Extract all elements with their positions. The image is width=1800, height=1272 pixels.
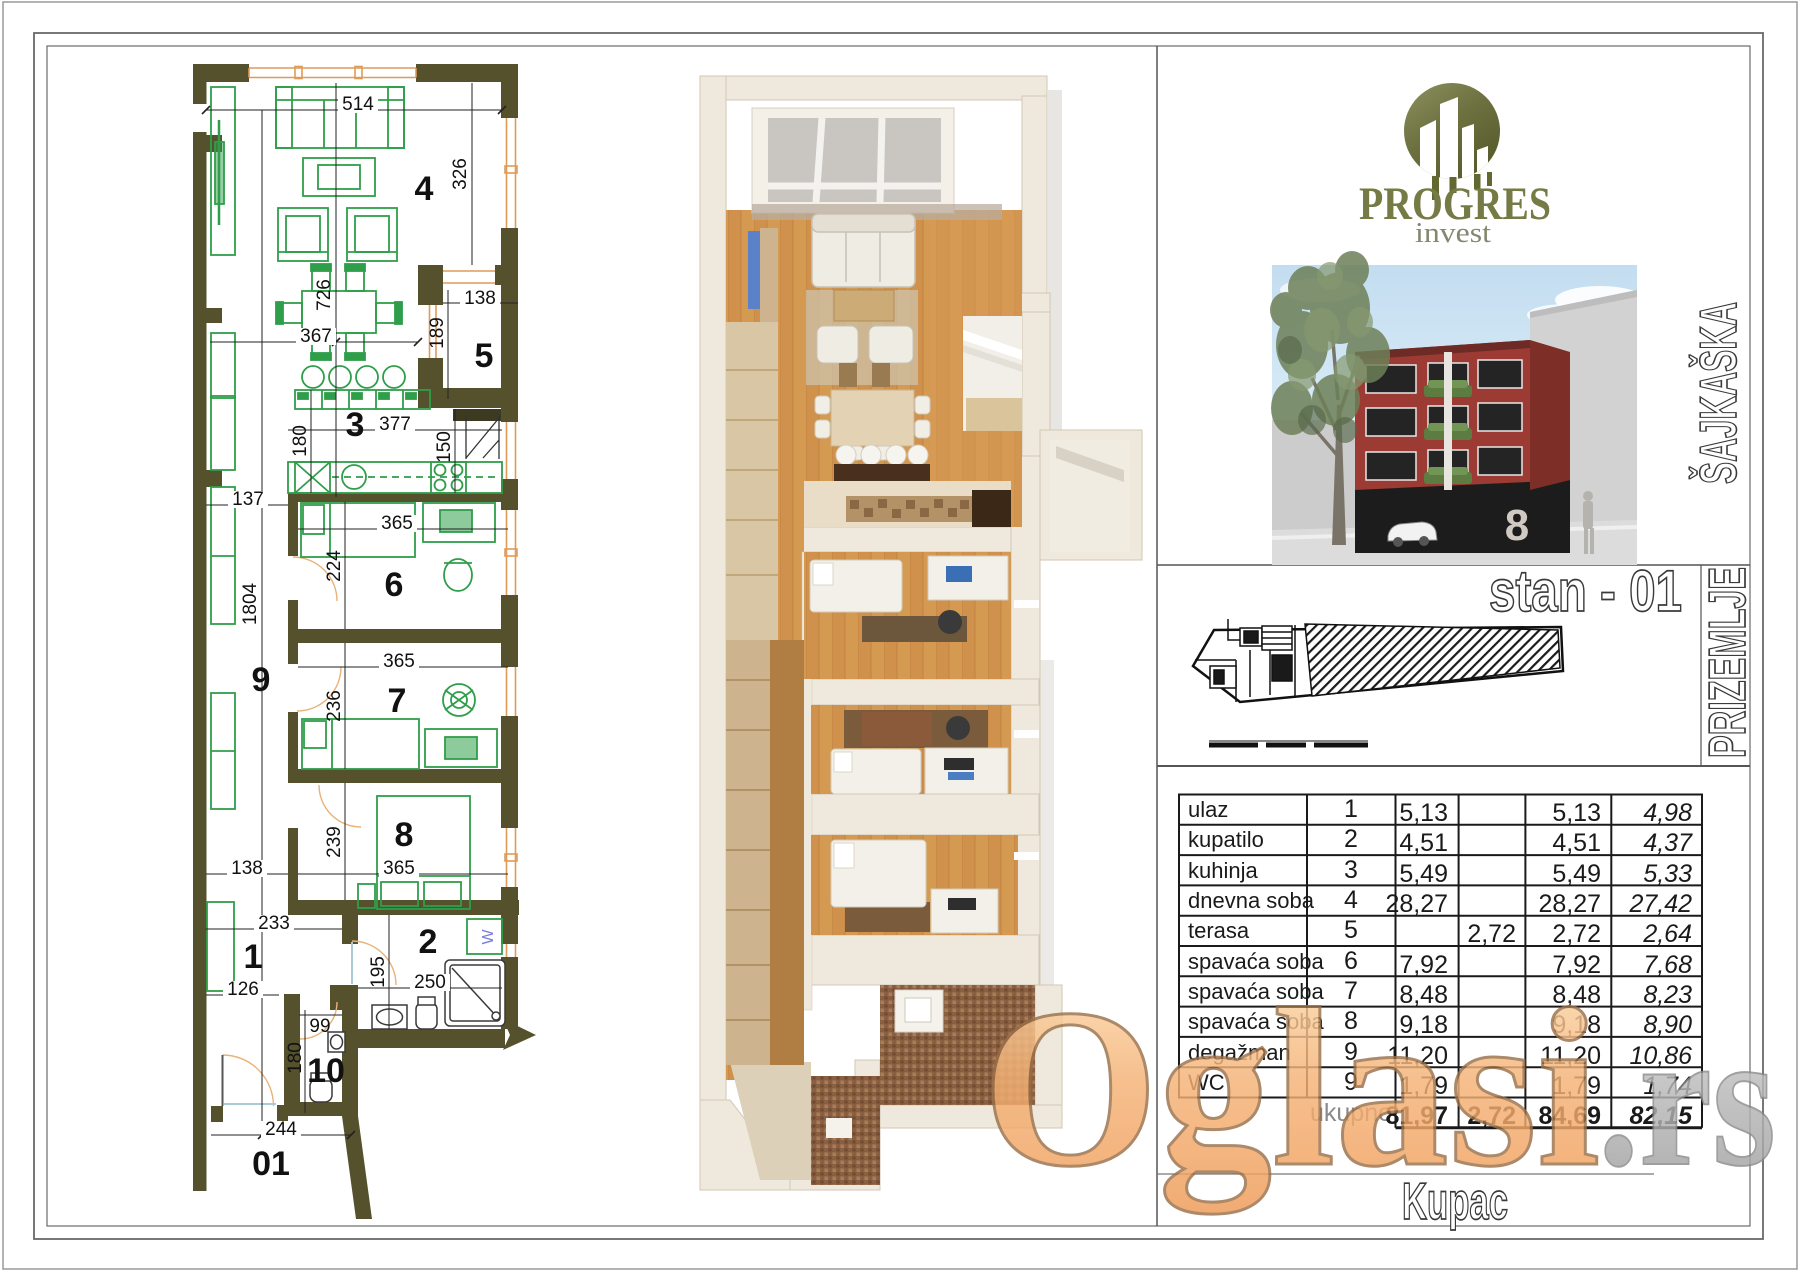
svg-text:28,27: 28,27 <box>1538 890 1601 918</box>
svg-text:28,27: 28,27 <box>1385 890 1448 918</box>
svg-text:189: 189 <box>427 317 448 349</box>
svg-text:4: 4 <box>1344 886 1358 914</box>
svg-text:5,33: 5,33 <box>1643 860 1692 888</box>
svg-text:99: 99 <box>309 1016 330 1037</box>
svg-text:stan - 01: stan - 01 <box>1489 559 1682 624</box>
svg-text:.rs: .rs <box>1598 991 1776 1207</box>
svg-text:6: 6 <box>385 566 404 604</box>
svg-text:7,68: 7,68 <box>1643 951 1692 979</box>
svg-text:326: 326 <box>450 158 471 190</box>
svg-text:W: W <box>480 929 497 945</box>
svg-text:4: 4 <box>415 170 434 208</box>
svg-text:10: 10 <box>307 1052 345 1090</box>
svg-text:2,72: 2,72 <box>1467 920 1516 948</box>
svg-text:138: 138 <box>231 858 263 879</box>
svg-text:8: 8 <box>1505 501 1529 550</box>
svg-text:7: 7 <box>388 682 407 720</box>
svg-text:4,37: 4,37 <box>1643 829 1693 857</box>
svg-text:5,13: 5,13 <box>1552 799 1601 827</box>
svg-text:250: 250 <box>414 972 446 993</box>
svg-text:1804: 1804 <box>240 582 261 625</box>
svg-text:138: 138 <box>464 288 496 309</box>
svg-text:9: 9 <box>252 661 271 699</box>
svg-text:224: 224 <box>324 550 345 582</box>
svg-text:377: 377 <box>379 414 411 435</box>
svg-text:726: 726 <box>314 279 335 311</box>
svg-text:365: 365 <box>381 513 413 534</box>
svg-text:2,72: 2,72 <box>1552 920 1601 948</box>
svg-text:3: 3 <box>346 406 365 444</box>
svg-text:3: 3 <box>1344 856 1358 884</box>
svg-text:514: 514 <box>342 94 374 115</box>
svg-text:27,42: 27,42 <box>1628 890 1692 918</box>
svg-text:5,49: 5,49 <box>1552 860 1601 888</box>
svg-text:Oglasi: Oglasi <box>982 963 1600 1214</box>
svg-text:1: 1 <box>1344 795 1358 823</box>
svg-text:5,13: 5,13 <box>1399 799 1448 827</box>
svg-text:5,49: 5,49 <box>1399 860 1448 888</box>
svg-text:8: 8 <box>395 816 414 854</box>
svg-text:236: 236 <box>324 690 345 722</box>
svg-text:2,64: 2,64 <box>1642 920 1692 948</box>
svg-text:126: 126 <box>227 979 259 1000</box>
svg-text:180: 180 <box>285 1042 306 1074</box>
svg-text:2: 2 <box>1344 825 1358 853</box>
svg-text:137: 137 <box>232 489 264 510</box>
svg-text:150: 150 <box>434 431 455 463</box>
svg-text:PRIZEMLJE: PRIZEMLJE <box>1699 567 1757 758</box>
svg-text:4,51: 4,51 <box>1399 829 1448 857</box>
svg-text:239: 239 <box>324 826 345 858</box>
svg-text:ulaz: ulaz <box>1188 797 1228 822</box>
svg-text:dnevna soba: dnevna soba <box>1188 888 1315 913</box>
svg-text:5: 5 <box>475 337 494 375</box>
svg-text:4,98: 4,98 <box>1643 799 1692 827</box>
svg-text:01: 01 <box>252 1145 290 1183</box>
svg-text:4,51: 4,51 <box>1552 829 1601 857</box>
svg-text:365: 365 <box>383 651 415 672</box>
svg-text:5: 5 <box>1344 916 1358 944</box>
svg-text:terasa: terasa <box>1188 918 1250 943</box>
svg-text:365: 365 <box>383 858 415 879</box>
svg-text:244: 244 <box>265 1119 297 1140</box>
svg-text:367: 367 <box>300 326 332 347</box>
svg-text:233: 233 <box>258 913 290 934</box>
svg-text:kupatilo: kupatilo <box>1188 827 1264 852</box>
svg-text:ŠAJKAŠKA: ŠAJKAŠKA <box>1689 302 1748 484</box>
svg-text:1: 1 <box>244 938 263 976</box>
svg-text:kuhinja: kuhinja <box>1188 858 1258 883</box>
svg-text:180: 180 <box>290 425 311 457</box>
svg-text:195: 195 <box>368 956 389 988</box>
svg-text:invest: invest <box>1415 217 1491 249</box>
svg-text:2: 2 <box>419 923 438 961</box>
